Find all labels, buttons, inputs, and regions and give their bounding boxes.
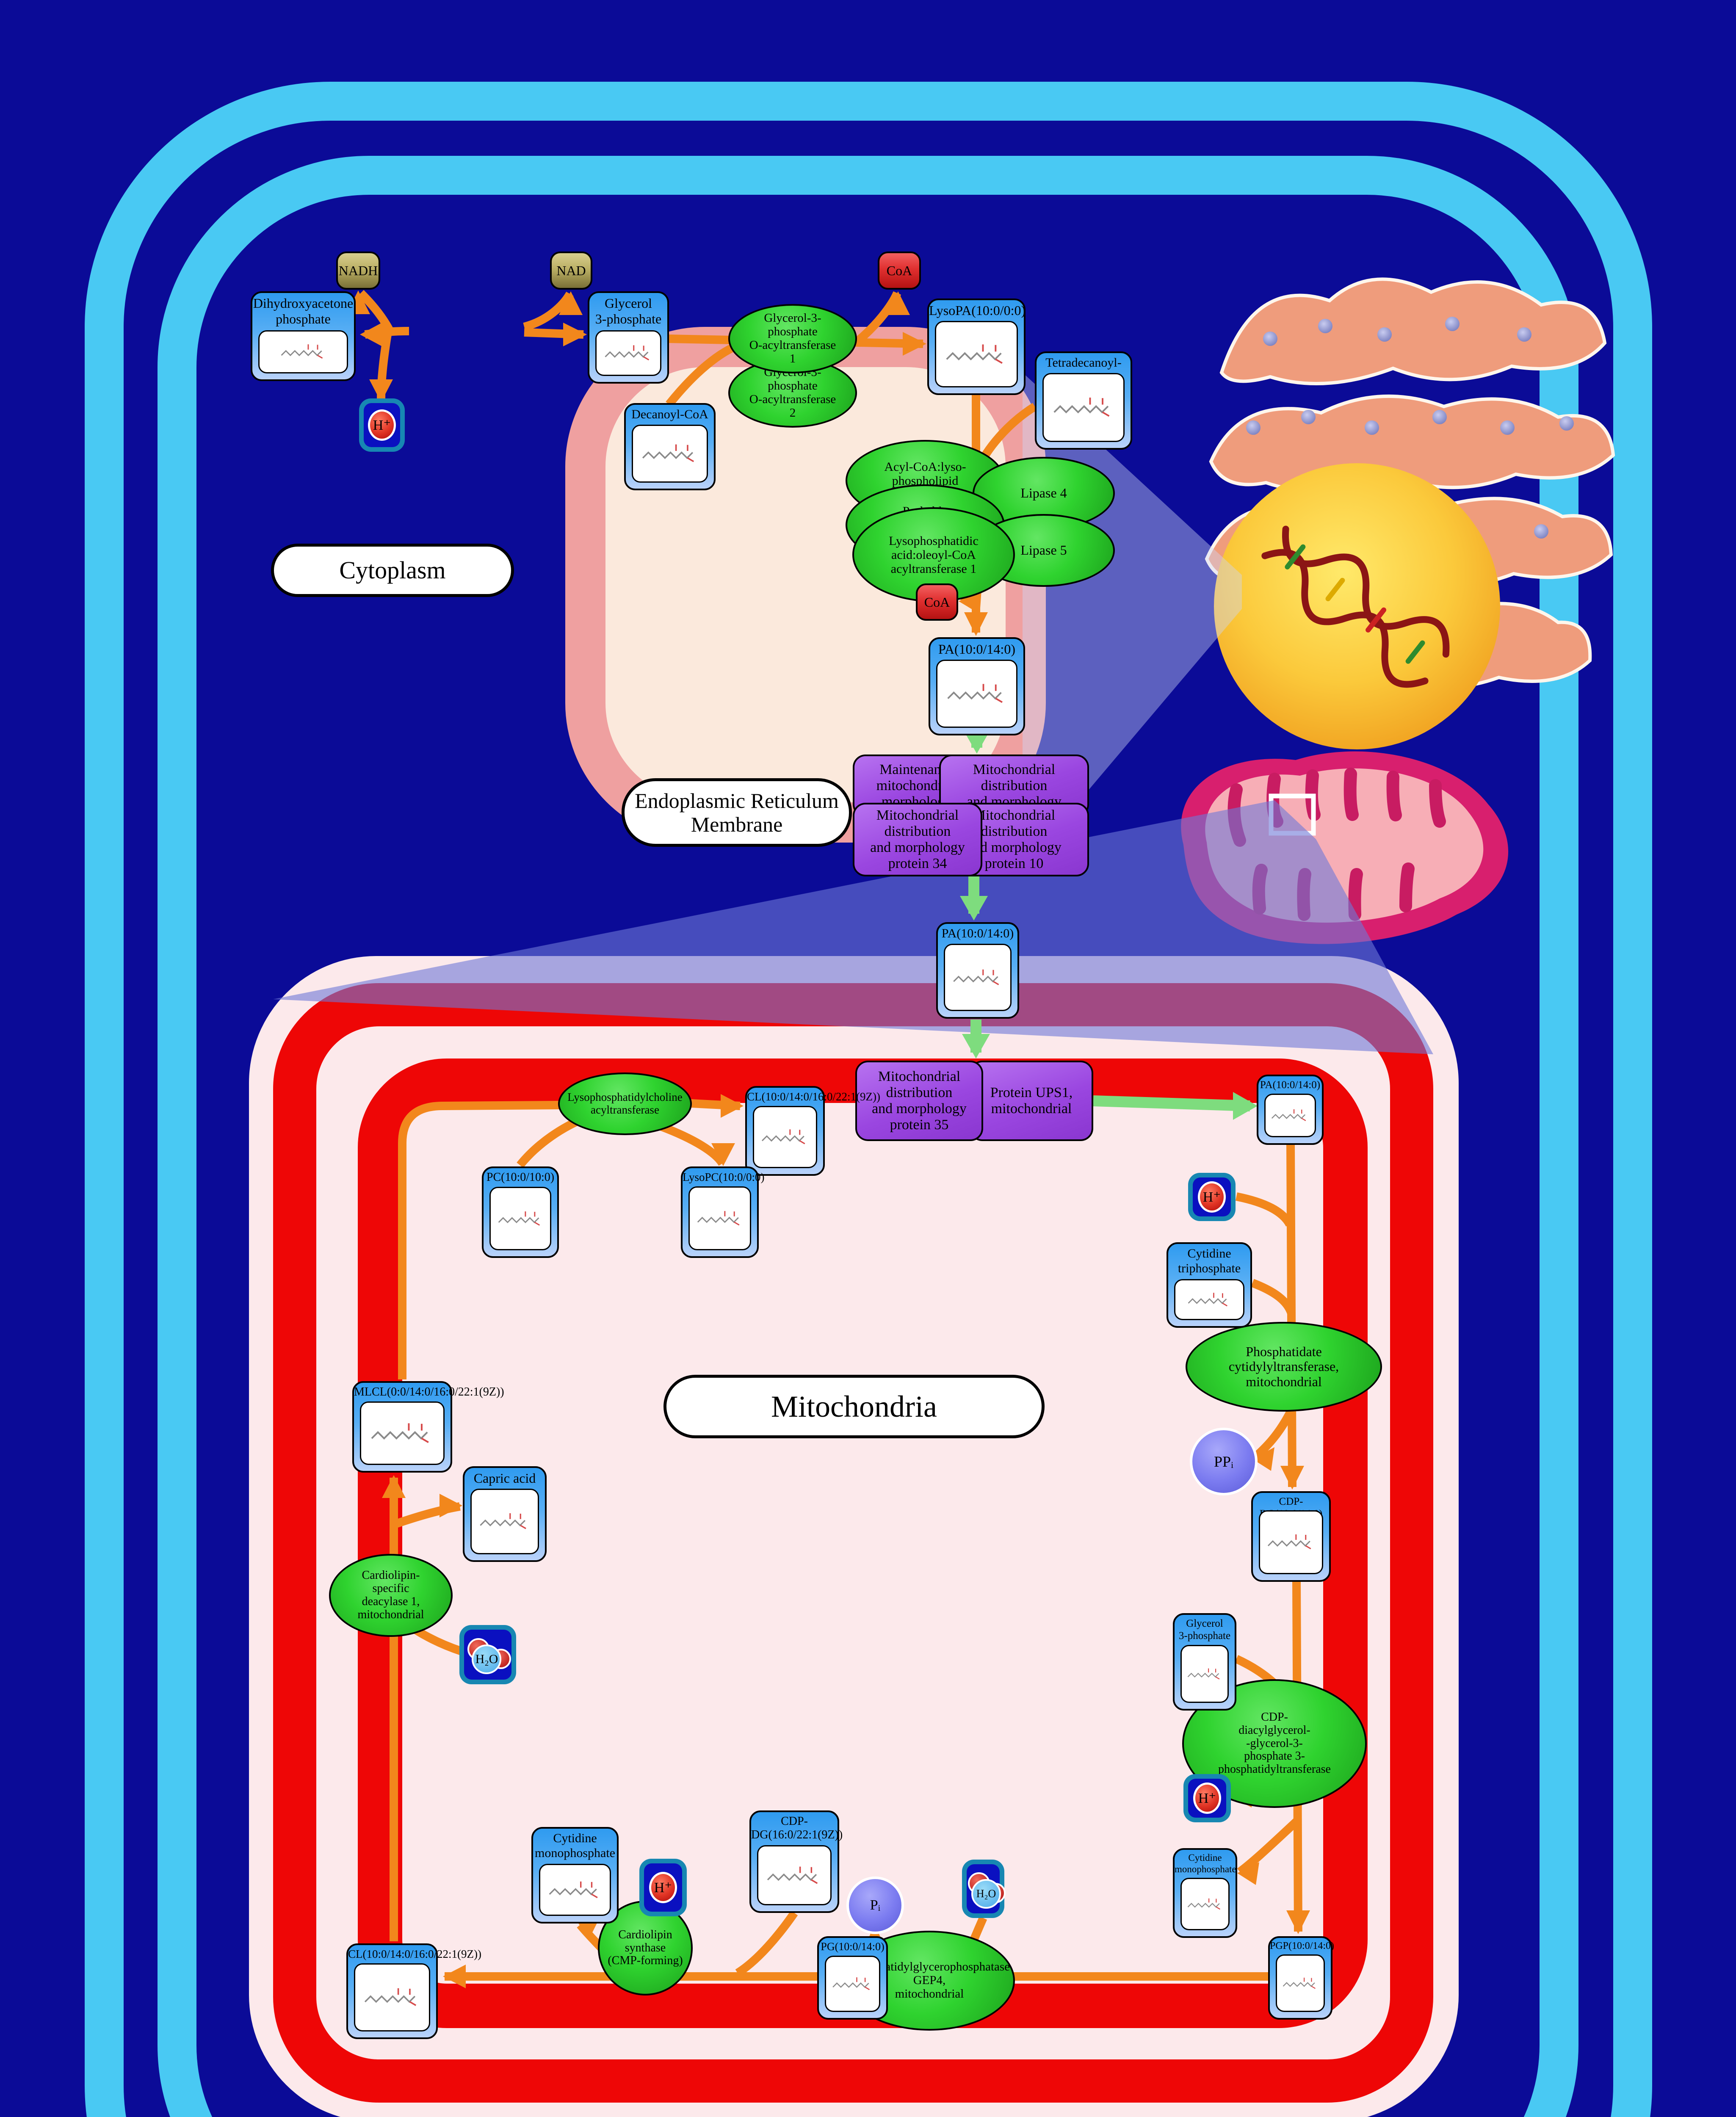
badge-coa_mid[interactable]: CoA [916, 583, 958, 621]
chemical-node-structure [1180, 1878, 1230, 1930]
molecule-structure-icon [1270, 1101, 1310, 1130]
chemical-node-capric_acid[interactable]: Capric acid [463, 1466, 547, 1562]
molecule-structure-icon [1186, 1887, 1224, 1922]
molecule-structure-icon [496, 1197, 545, 1240]
molecule-structure-icon [478, 1499, 532, 1543]
molecule-structure-icon [368, 1412, 436, 1455]
nucleus-icon [1214, 463, 1500, 749]
chemical-node-structure [753, 1106, 817, 1168]
enzyme-lpcat[interactable]: Lysophosphatidylcholine acyltransferase [558, 1072, 692, 1135]
chemical-node-g3p_cyto[interactable]: Glycerol 3-phosphate [588, 291, 669, 384]
chemical-node-label: PA(10:0/14:0) [1258, 1079, 1322, 1091]
chemical-node-label: PA(10:0/14:0) [930, 641, 1023, 657]
mitochondria-label: Mitochondria [663, 1375, 1045, 1438]
molecule-structure-icon [760, 1116, 810, 1158]
er-membrane-label: Endoplasmic Reticulum Membrane [622, 778, 852, 847]
chemical-node-structure [1042, 373, 1125, 442]
chemical-node-cmp_left[interactable]: Cytidine monophosphate [531, 1827, 619, 1924]
proton-icon: H⁺ [1193, 1783, 1221, 1814]
chemical-node-label: CDP- DG(16:0/22:1(9Z)) [751, 1815, 838, 1842]
chemical-node-pg[interactable]: PG(10:0/14:0) [817, 1936, 888, 2020]
chemical-node-structure [258, 330, 348, 373]
chemical-node-structure [936, 660, 1017, 728]
chemical-node-cdp_dg1[interactable]: CDP-DG(10:0/14:0) [1251, 1491, 1331, 1582]
proton-icon: H⁺ [1198, 1181, 1226, 1213]
badge-nad[interactable]: NAD [550, 251, 592, 290]
badge-nadh[interactable]: NADH [336, 251, 380, 290]
badge-hplus_right1[interactable]: H⁺ [1188, 1173, 1236, 1221]
chemical-node-structure [595, 330, 661, 376]
molecule-structure-icon [951, 955, 1004, 1000]
chemical-node-label: Cytidine monophosphate [1175, 1852, 1236, 1875]
chemical-node-label: MLCL(0:0/14:0/16:0/22:1(9Z)) [354, 1385, 451, 1399]
chemical-node-cl_top[interactable]: CL(10:0/14:0/16:0/22:1(9Z)) [745, 1086, 825, 1176]
chemical-node-decanoyl_coa[interactable]: Decanoyl-CoA [624, 403, 716, 490]
chemical-node-label: CL(10:0/14:0/16:0/22:1(9Z)) [348, 1948, 436, 1961]
proton-icon: H⁺ [368, 409, 396, 441]
chemical-node-label: Glycerol 3-phosphate [589, 296, 667, 327]
chemical-node-pa_er[interactable]: PA(10:0/14:0) [929, 637, 1025, 735]
cytoplasm-label: Cytoplasm [271, 544, 514, 597]
molecule-structure-icon [640, 434, 700, 473]
chemical-node-pa_mid[interactable]: PA(10:0/14:0) [936, 922, 1019, 1019]
chemical-node-structure [1259, 1510, 1323, 1575]
metabolite-blob-pi[interactable]: Pᵢ [846, 1877, 904, 1934]
chemical-node-label: PC(10:0/10:0) [484, 1171, 557, 1184]
badge-h2o_left[interactable]: H₂O [459, 1625, 516, 1684]
chemical-node-pa_right[interactable]: PA(10:0/14:0) [1257, 1075, 1324, 1145]
chemical-node-lysopc[interactable]: LysoPC(10:0/0:0) [681, 1166, 759, 1258]
molecule-structure-icon [1181, 1286, 1237, 1313]
chemical-node-structure [935, 321, 1018, 387]
molecule-structure-icon [765, 1855, 824, 1896]
chemical-node-label: Dihydroxyacetone phosphate [252, 296, 354, 327]
badge-coa_top[interactable]: CoA [878, 251, 921, 290]
chemical-node-label: CL(10:0/14:0/16:0/22:1(9Z)) [747, 1090, 823, 1103]
chemical-node-structure [539, 1864, 611, 1916]
chemical-node-mlcl[interactable]: MLCL(0:0/14:0/16:0/22:1(9Z)) [352, 1381, 452, 1473]
protein-box-ups1[interactable]: Protein UPS1, mitochondrial [970, 1061, 1093, 1141]
water-icon: H₂O [971, 1879, 1001, 1909]
chemical-node-structure [1276, 1954, 1325, 2012]
metabolite-blob-ppi[interactable]: PPᵢ [1190, 1428, 1258, 1495]
enzyme-pcyt_mito[interactable]: Phosphatidate cytidylyltransferase, mito… [1186, 1322, 1382, 1412]
chemical-node-structure [1264, 1094, 1316, 1138]
chemical-node-structure [632, 425, 708, 483]
chemical-node-cmp_right[interactable]: Cytidine monophosphate [1173, 1848, 1237, 1938]
chemical-node-label: LysoPC(10:0/0:0) [683, 1171, 757, 1184]
chemical-node-label: Glycerol 3-phosphate [1175, 1617, 1235, 1642]
molecule-structure-icon [268, 337, 339, 366]
molecule-structure-icon [945, 671, 1009, 716]
molecule-structure-icon [695, 1197, 744, 1240]
molecule-structure-icon [362, 1974, 423, 2020]
chemical-node-structure [360, 1401, 445, 1465]
chemical-node-cl_bottom[interactable]: CL(10:0/14:0/16:0/22:1(9Z)) [346, 1943, 438, 2039]
enzyme-clod1[interactable]: Cardiolipin- specific deacylase 1, mitoc… [329, 1554, 453, 1637]
molecule-structure-icon [1281, 1964, 1319, 2003]
chemical-node-label: LysoPA(10:0/0:0) [929, 303, 1024, 318]
chemical-node-cdp_dg2[interactable]: CDP- DG(16:0/22:1(9Z)) [749, 1810, 839, 1913]
chemical-node-g3p_mito[interactable]: Glycerol 3-phosphate [1173, 1613, 1236, 1711]
molecule-structure-icon [831, 1965, 874, 2003]
pathway-diagram: Cytoplasm Endoplasmic Reticulum Membrane… [0, 0, 1736, 2117]
chemical-node-pc[interactable]: PC(10:0/10:0) [482, 1166, 559, 1258]
molecule-structure-icon [1051, 384, 1116, 431]
protein-box-mdm34[interactable]: Mitochondrial distribution and morpholog… [853, 803, 982, 876]
chemical-node-structure [688, 1186, 751, 1250]
chemical-node-label: Cytidine monophosphate [533, 1831, 617, 1861]
chemical-node-structure [354, 1963, 430, 2031]
chemical-node-structure [489, 1187, 551, 1250]
chemical-node-structure [944, 944, 1012, 1011]
badge-hplus_right2[interactable]: H⁺ [1183, 1774, 1231, 1822]
chemical-node-label: Decanoyl-CoA [626, 407, 714, 422]
molecule-structure-icon [603, 338, 655, 368]
badge-hplus_top[interactable]: H⁺ [359, 398, 405, 452]
chemical-node-label: PA(10:0/14:0) [938, 926, 1017, 941]
chemical-node-label: Cytidine triphosphate [1168, 1246, 1250, 1276]
chemical-node-pgp[interactable]: PGP(10:0/14:0) [1268, 1936, 1332, 2020]
chemical-node-structure [757, 1845, 832, 1905]
chemical-node-label: PG(10:0/14:0) [819, 1940, 886, 1953]
molecule-structure-icon [547, 1873, 603, 1907]
molecule-structure-icon [1266, 1520, 1316, 1564]
chemical-node-structure [1180, 1645, 1229, 1703]
molecule-structure-icon [943, 332, 1009, 377]
proton-icon: H⁺ [649, 1872, 677, 1903]
chemical-node-label: PGP(10:0/14:0) [1270, 1940, 1331, 1952]
chemical-node-dhap[interactable]: Dihydroxyacetone phosphate [251, 291, 356, 381]
badge-hplus_bottom[interactable]: H⁺ [639, 1859, 687, 1916]
chemical-node-lysopa[interactable]: LysoPA(10:0/0:0) [927, 298, 1026, 395]
chemical-node-structure [470, 1489, 539, 1554]
chemical-node-label: Capric acid [464, 1470, 545, 1486]
chemical-node-tetradecanoyl_coa[interactable]: Tetradecanoyl-CoA [1035, 351, 1132, 450]
molecule-structure-icon [1186, 1655, 1224, 1694]
chemical-node-structure [1174, 1279, 1244, 1320]
chemical-node-ctp[interactable]: Cytidine triphosphate [1167, 1242, 1252, 1328]
chemical-node-structure [825, 1956, 880, 2012]
enzyme-gpat1[interactable]: Glycerol-3- phosphate O-acyltransferase … [728, 304, 857, 373]
badge-h2o_right[interactable]: H₂O [962, 1860, 1004, 1918]
